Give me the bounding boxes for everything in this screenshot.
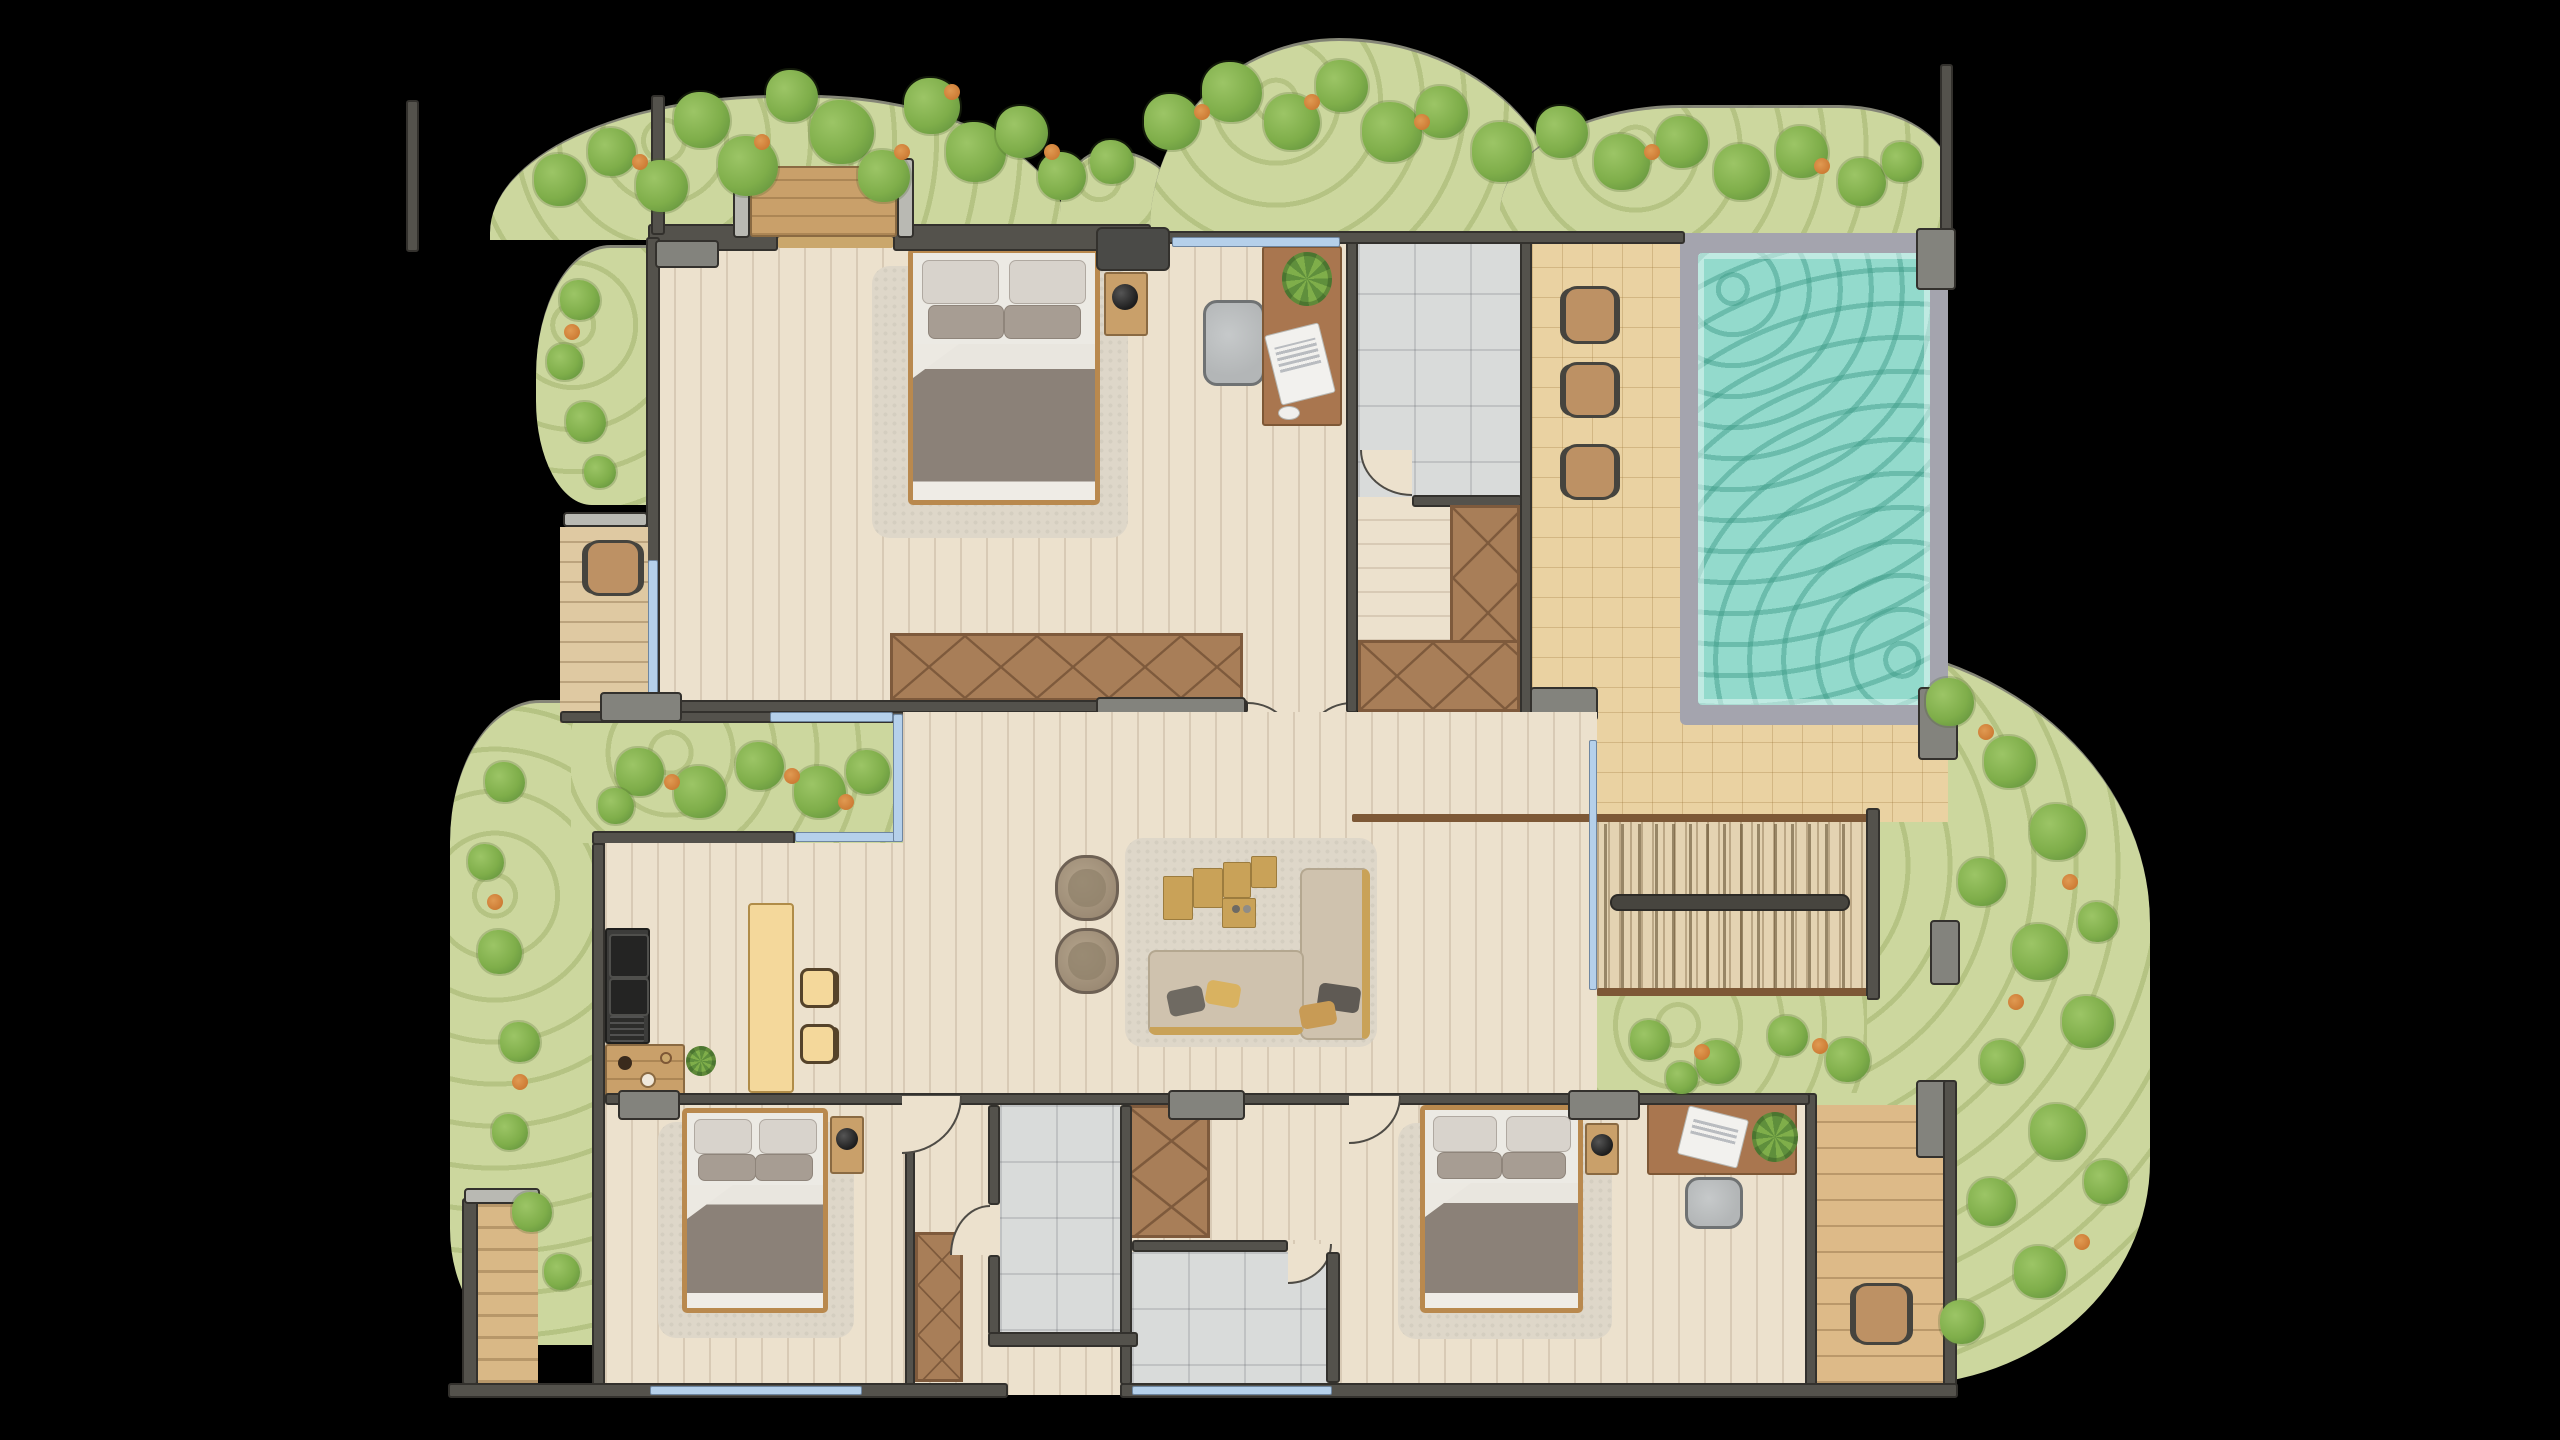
bush-icon — [1882, 142, 1922, 182]
stair-rail — [1610, 894, 1850, 911]
glass-wall — [1589, 740, 1597, 990]
bush-icon — [598, 788, 634, 824]
bush-icon — [534, 154, 586, 206]
pillow — [694, 1119, 752, 1154]
island-chair — [800, 1024, 836, 1064]
pillow — [1506, 1116, 1571, 1152]
pillow — [1009, 260, 1086, 304]
window — [1132, 1386, 1332, 1395]
deck-chair — [1563, 444, 1617, 500]
lamp-icon — [1112, 284, 1138, 310]
flower-icon — [1414, 114, 1430, 130]
counter-grill — [610, 1016, 644, 1042]
stove-icon — [609, 934, 649, 978]
flower-icon — [2074, 1234, 2090, 1250]
wall-lintel — [655, 240, 719, 268]
bush-icon — [1416, 86, 1468, 138]
bathroom2-wall-left — [988, 1105, 1000, 1205]
bedroom2-bed — [682, 1108, 828, 1313]
master-bed — [908, 248, 1100, 505]
pool-wall — [1940, 64, 1953, 232]
bush-icon — [1838, 158, 1886, 206]
flower-icon — [894, 144, 910, 160]
bush-icon — [1316, 60, 1368, 112]
pillow — [1433, 1116, 1498, 1152]
wall-lintel — [1168, 1090, 1245, 1120]
bush-icon — [2030, 804, 2086, 860]
lamp-icon — [1591, 1134, 1613, 1156]
flower-icon — [838, 794, 854, 810]
bedroom3-bed — [1420, 1105, 1583, 1313]
threshold — [778, 237, 893, 248]
flower-icon — [564, 324, 580, 340]
bush-icon — [794, 766, 846, 818]
bush-icon — [1980, 1040, 2024, 1084]
coffee-table-module — [1223, 862, 1251, 898]
bush-icon — [512, 1192, 552, 1232]
armchair — [1055, 855, 1119, 921]
island-chair — [800, 968, 836, 1008]
bush-icon — [810, 100, 874, 164]
bathroom3-wall-top — [1132, 1240, 1288, 1252]
wall-lintel — [600, 692, 682, 722]
flower-icon — [512, 1074, 528, 1090]
bush-icon — [1472, 122, 1532, 182]
bush-icon — [1038, 152, 1086, 200]
pillow — [1437, 1152, 1502, 1180]
bush-icon — [1826, 1038, 1870, 1082]
flower-icon — [1304, 94, 1320, 110]
deck-chair — [1563, 286, 1617, 344]
bush-icon — [736, 742, 784, 790]
bedroom3-wall-right — [1805, 1093, 1817, 1387]
lamp-icon — [836, 1128, 858, 1150]
armchair — [1055, 928, 1119, 994]
bush-icon — [485, 762, 525, 802]
bush-icon — [2078, 902, 2118, 942]
bush-icon — [1714, 144, 1770, 200]
bush-icon — [566, 402, 606, 442]
bush-icon — [468, 844, 504, 880]
bush-icon — [1090, 140, 1134, 184]
window — [1172, 237, 1340, 247]
flower-icon — [2062, 874, 2078, 890]
plant-icon — [1282, 252, 1332, 306]
flower-icon — [1044, 144, 1060, 160]
bush-icon — [2062, 996, 2114, 1048]
pillow — [698, 1154, 756, 1181]
flower-icon — [1814, 158, 1830, 174]
window — [650, 1386, 862, 1395]
pillow — [755, 1154, 813, 1181]
bush-icon — [544, 1254, 580, 1290]
bush-icon — [2084, 1160, 2128, 1204]
pillar — [1916, 228, 1956, 290]
bush-icon — [584, 456, 616, 488]
bush-icon — [846, 750, 890, 794]
balcony-chair — [1853, 1283, 1910, 1345]
headboard-console — [1096, 227, 1170, 271]
bush-icon — [1926, 678, 1974, 726]
coffee-table-module — [1222, 898, 1256, 928]
bush-icon — [1666, 1062, 1698, 1094]
balcony-shelf — [563, 512, 648, 527]
flower-icon — [632, 154, 648, 170]
bush-icon — [1968, 1178, 2016, 1226]
flower-icon — [1812, 1038, 1828, 1054]
bush-icon — [1144, 94, 1200, 150]
flower-icon — [944, 84, 960, 100]
bathroom2-floor — [1000, 1105, 1120, 1333]
plant-icon — [686, 1046, 716, 1076]
bush-icon — [1594, 134, 1650, 190]
plant-icon — [1752, 1112, 1798, 1162]
wall-lintel — [1568, 1090, 1640, 1120]
bathroom3-wall-right — [1326, 1252, 1340, 1383]
bush-icon — [500, 1022, 540, 1062]
bush-icon — [547, 344, 583, 380]
bush-icon — [1984, 736, 2036, 788]
bathroom2-wall-left — [988, 1255, 1000, 1335]
bush-icon — [2014, 1246, 2066, 1298]
flower-icon — [784, 768, 800, 784]
west-wall-lower — [592, 843, 605, 1395]
bush-icon — [1768, 1016, 1808, 1056]
flower-icon — [2008, 994, 2024, 1010]
bathroom-wall-left — [1346, 237, 1358, 713]
pillow — [759, 1119, 817, 1154]
pool — [1698, 253, 1930, 705]
flower-icon — [664, 774, 680, 790]
cup-icon — [640, 1072, 656, 1088]
mouse-icon — [1278, 406, 1300, 420]
bush-icon — [478, 930, 522, 974]
deck-wall-right — [1866, 808, 1880, 1000]
pillow — [922, 260, 999, 304]
bush-icon — [588, 128, 636, 176]
coffee-table-module — [1193, 868, 1223, 908]
coffee-table-module — [1163, 876, 1193, 920]
duvet — [1425, 1183, 1578, 1308]
flower-icon — [1694, 1044, 1710, 1060]
bush-icon — [492, 1114, 528, 1150]
bush-icon — [766, 70, 818, 122]
flower-icon — [1978, 724, 1994, 740]
flower-icon — [487, 894, 503, 910]
balcony-chair — [585, 540, 641, 596]
bush-icon — [1536, 106, 1588, 158]
table-decor — [1243, 905, 1251, 913]
hallway-floor — [1210, 1105, 1328, 1240]
wall-lintel — [618, 1090, 680, 1120]
closet-wardrobe-vertical — [1450, 505, 1520, 645]
bush-icon — [1940, 1300, 1984, 1344]
flower-icon — [1194, 104, 1210, 120]
cup-icon — [618, 1056, 632, 1070]
cup-icon — [660, 1052, 672, 1064]
bush-icon — [674, 92, 730, 148]
window — [893, 714, 903, 842]
bush-icon — [996, 106, 1048, 158]
hall-closet — [1127, 1105, 1210, 1238]
flower-icon — [754, 134, 770, 150]
bush-icon — [674, 766, 726, 818]
bush-icon — [1630, 1020, 1670, 1060]
table-decor — [1232, 905, 1240, 913]
pillow — [1502, 1152, 1567, 1180]
balcony-bl-wall — [462, 1198, 478, 1385]
coffee-table-module — [1251, 856, 1277, 888]
closet-wardrobe-horizontal — [1358, 640, 1520, 712]
bush-icon — [1958, 858, 2006, 906]
duvet — [687, 1185, 823, 1308]
stair-edge — [1352, 814, 1874, 822]
pillow — [1004, 305, 1081, 339]
bush-icon — [2012, 924, 2068, 980]
window — [648, 560, 658, 712]
deck-chair — [1563, 362, 1617, 418]
window — [770, 712, 893, 722]
flower-icon — [1644, 144, 1660, 160]
bathroom2-wall-bottom — [988, 1332, 1138, 1347]
pillar — [1930, 920, 1960, 985]
office-chair — [1203, 300, 1265, 386]
pillow — [928, 305, 1005, 339]
kitchen-island — [748, 903, 794, 1093]
bush-icon — [2030, 1104, 2086, 1160]
master-wardrobe — [890, 633, 1243, 701]
sink-icon — [609, 978, 649, 1016]
bush-icon — [1362, 102, 1422, 162]
wall-stub — [406, 100, 419, 252]
desk-chair — [1685, 1177, 1743, 1229]
bush-icon — [1202, 62, 1262, 122]
bathroom-wall-right — [1520, 237, 1532, 715]
duvet — [913, 344, 1095, 500]
bush-icon — [1656, 116, 1708, 168]
stair-edge — [1597, 988, 1874, 996]
window — [795, 832, 903, 842]
bush-icon — [560, 280, 600, 320]
floor-plan — [0, 0, 2560, 1440]
